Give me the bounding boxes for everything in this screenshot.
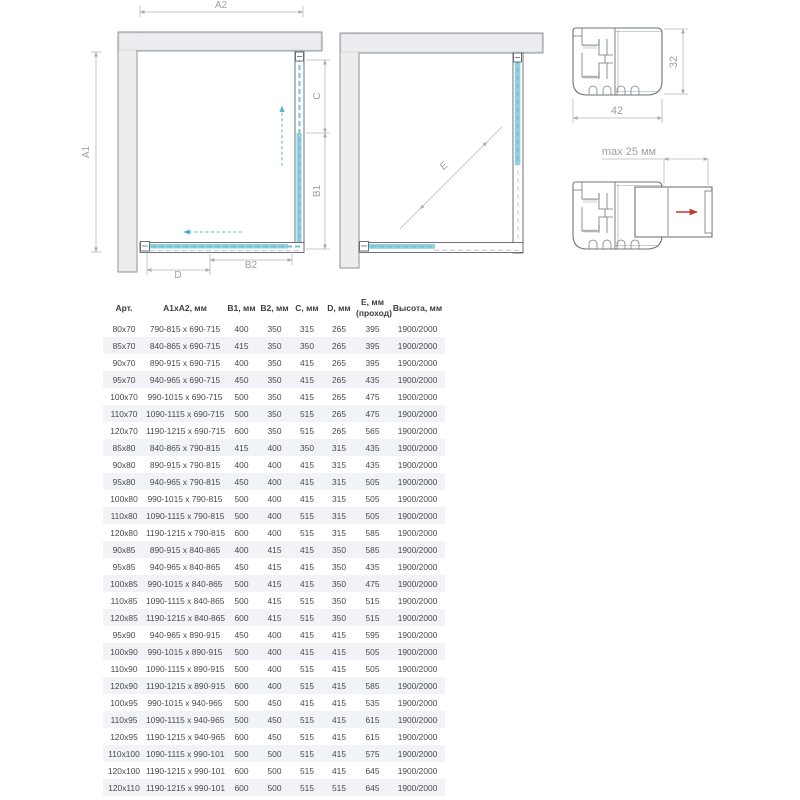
table-cell: 120x80 <box>103 524 145 541</box>
table-row: 95x90940-965 x 890-915450400415415595190… <box>103 626 445 643</box>
table-row: 95x80940-965 x 790-815450400415315505190… <box>103 473 445 490</box>
table-header-row: Арт.A1xA2, ммB1, ммB2, ммC, ммD, ммE, мм… <box>103 296 445 320</box>
dim-label-max-extension: max 25 мм <box>602 146 656 158</box>
table-cell: 515 <box>291 422 323 439</box>
table-cell: 1190-1215 x 840-865 <box>145 609 225 626</box>
table-cell: 475 <box>355 575 390 592</box>
table-cell: 395 <box>355 320 390 337</box>
table-cell: 435 <box>355 558 390 575</box>
table-cell: 400 <box>225 541 258 558</box>
table-cell: 1900/2000 <box>390 320 445 337</box>
table-cell: 1900/2000 <box>390 558 445 575</box>
table-cell: 500 <box>258 745 291 762</box>
column-header: Высота, мм <box>390 296 445 320</box>
table-cell: 1190-1215 x 890-915 <box>145 677 225 694</box>
table-body: 80x70790-815 x 690-715400350315265395190… <box>103 320 445 796</box>
table-cell: 415 <box>291 473 323 490</box>
table-cell: 1090-1115 x 990-1015 <box>145 745 225 762</box>
table-cell: 645 <box>355 762 390 779</box>
table-cell: 1900/2000 <box>390 592 445 609</box>
table-cell: 110x95 <box>103 711 145 728</box>
table-cell: 400 <box>258 456 291 473</box>
table-cell: 400 <box>258 473 291 490</box>
table-row: 110x851090-1115 x 840-865500415515350515… <box>103 592 445 609</box>
table-cell: 415 <box>291 558 323 575</box>
table-cell: 500 <box>225 592 258 609</box>
table-cell: 100x85 <box>103 575 145 592</box>
table-cell: 415 <box>258 609 291 626</box>
table-cell: 615 <box>355 711 390 728</box>
table-cell: 500 <box>225 405 258 422</box>
table-row: 95x70940-965 x 690-715450350415265435190… <box>103 371 445 388</box>
table-cell: 990-1015 x 890-915 <box>145 643 225 660</box>
table-cell: 450 <box>258 694 291 711</box>
table-cell: 500 <box>225 643 258 660</box>
table-cell: 1900/2000 <box>390 779 445 796</box>
table-cell: 500 <box>225 745 258 762</box>
table-cell: 940-965 x 840-865 <box>145 558 225 575</box>
table-cell: 350 <box>291 337 323 354</box>
table-cell: 265 <box>323 337 355 354</box>
table-cell: 1190-1215 x 990-1015 <box>145 762 225 779</box>
dim-label-b1: B1 <box>312 184 323 197</box>
table-cell: 350 <box>323 592 355 609</box>
dim-label-profile-height: 32 <box>668 56 680 68</box>
table-cell: 645 <box>355 779 390 796</box>
table-cell: 1900/2000 <box>390 456 445 473</box>
table-cell: 1900/2000 <box>390 575 445 592</box>
table-cell: 120x85 <box>103 609 145 626</box>
table-row: 120x1101190-1215 x 990-10156005005155156… <box>103 779 445 796</box>
table-cell: 415 <box>323 643 355 660</box>
table-cell: 400 <box>225 320 258 337</box>
dimension-e <box>400 127 502 229</box>
table-row: 90x85890-915 x 840-865400415415350585190… <box>103 541 445 558</box>
table-cell: 600 <box>225 762 258 779</box>
table-cell: 600 <box>225 677 258 694</box>
column-header: B2, мм <box>258 296 291 320</box>
table-cell: 940-965 x 690-715 <box>145 371 225 388</box>
table-cell: 475 <box>355 388 390 405</box>
table-cell: 515 <box>291 405 323 422</box>
table-cell: 415 <box>291 643 323 660</box>
shower-enclosure-spec-sheet: { "plan_left": { "dim_a1": "A1", "dim_a2… <box>0 0 800 800</box>
table-cell: 415 <box>291 626 323 643</box>
table-cell: 535 <box>355 694 390 711</box>
table-cell: 515 <box>291 711 323 728</box>
table-cell: 80x70 <box>103 320 145 337</box>
table-cell: 415 <box>323 694 355 711</box>
table-cell: 415 <box>323 660 355 677</box>
table-cell: 1900/2000 <box>390 541 445 558</box>
table-cell: 265 <box>323 371 355 388</box>
table-cell: 1190-1215 x 690-715 <box>145 422 225 439</box>
sliding-extension <box>635 187 712 237</box>
table-cell: 90x70 <box>103 354 145 371</box>
table-row: 110x701090-1115 x 690-715500350515265475… <box>103 405 445 422</box>
table-row: 90x70890-915 x 690-715400350415265395190… <box>103 354 445 371</box>
table-cell: 515 <box>291 677 323 694</box>
table-cell: 1900/2000 <box>390 728 445 745</box>
table-cell: 110x80 <box>103 507 145 524</box>
table-cell: 315 <box>323 439 355 456</box>
table-cell: 1900/2000 <box>390 371 445 388</box>
table-cell: 500 <box>225 694 258 711</box>
table-cell: 400 <box>258 524 291 541</box>
table-cell: 600 <box>225 609 258 626</box>
table-cell: 315 <box>323 507 355 524</box>
table-cell: 415 <box>258 541 291 558</box>
table-row: 110x801090-1115 x 790-815500400515315505… <box>103 507 445 524</box>
table-cell: 1900/2000 <box>390 422 445 439</box>
table-cell: 890-915 x 790-815 <box>145 456 225 473</box>
table-cell: 1900/2000 <box>390 507 445 524</box>
table-row: 120x701190-1215 x 690-715600350515265565… <box>103 422 445 439</box>
table-cell: 415 <box>291 575 323 592</box>
table-cell: 435 <box>355 439 390 456</box>
table-cell: 1900/2000 <box>390 745 445 762</box>
table-cell: 515 <box>291 524 323 541</box>
table-cell: 840-865 x 790-815 <box>145 439 225 456</box>
table-cell: 315 <box>291 320 323 337</box>
table-cell: 315 <box>323 524 355 541</box>
table-cell: 990-1015 x 690-715 <box>145 388 225 405</box>
bottom-glass-assembly <box>140 242 304 253</box>
right-glass-assembly <box>513 53 523 253</box>
table-cell: 1900/2000 <box>390 643 445 660</box>
table-row: 120x901190-1215 x 890-915600400515415585… <box>103 677 445 694</box>
table-cell: 990-1015 x 840-865 <box>145 575 225 592</box>
table-cell: 350 <box>258 320 291 337</box>
table-cell: 515 <box>291 592 323 609</box>
table-row: 120x951190-1215 x 940-965600450515415615… <box>103 728 445 745</box>
table-cell: 415 <box>291 354 323 371</box>
dim-label-b2: B2 <box>245 260 258 271</box>
table-cell: 595 <box>355 626 390 643</box>
table-cell: 100x80 <box>103 490 145 507</box>
table-cell: 500 <box>225 388 258 405</box>
table-cell: 350 <box>258 337 291 354</box>
table-cell: 500 <box>225 490 258 507</box>
dim-label-e: E <box>438 160 451 173</box>
table-row: 100x80990-1015 x 790-8155004004153155051… <box>103 490 445 507</box>
table-cell: 450 <box>225 473 258 490</box>
table-cell: 120x110 <box>103 779 145 796</box>
table-cell: 1900/2000 <box>390 626 445 643</box>
table-row: 120x851190-1215 x 840-865600415515350515… <box>103 609 445 626</box>
table-cell: 505 <box>355 660 390 677</box>
column-header: C, мм <box>291 296 323 320</box>
table-cell: 1900/2000 <box>390 405 445 422</box>
table-cell: 400 <box>225 456 258 473</box>
table-cell: 265 <box>323 405 355 422</box>
table-cell: 450 <box>225 371 258 388</box>
table-cell: 415 <box>258 592 291 609</box>
table-row: 85x70840-865 x 690-715415350350265395190… <box>103 337 445 354</box>
plan-view-open-drawing: E <box>330 10 560 292</box>
table-cell: 110x85 <box>103 592 145 609</box>
table-cell: 1090-1115 x 840-865 <box>145 592 225 609</box>
table-cell: 1900/2000 <box>390 660 445 677</box>
table-cell: 1090-1115 x 940-965 <box>145 711 225 728</box>
table-cell: 350 <box>258 354 291 371</box>
plan-view-closed-drawing: A2 A1 C B1 B2 D <box>80 0 330 292</box>
table-cell: 1900/2000 <box>390 524 445 541</box>
table-row: 100x70990-1015 x 690-7155003504152654751… <box>103 388 445 405</box>
table-cell: 415 <box>323 626 355 643</box>
table-cell: 415 <box>323 745 355 762</box>
table-cell: 1900/2000 <box>390 439 445 456</box>
right-glass-assembly <box>295 52 304 252</box>
column-header: Арт. <box>103 296 145 320</box>
table-cell: 395 <box>355 354 390 371</box>
table-row: 100x85990-1015 x 840-8655004154153504751… <box>103 575 445 592</box>
table-cell: 515 <box>291 507 323 524</box>
table-cell: 95x70 <box>103 371 145 388</box>
table-cell: 85x70 <box>103 337 145 354</box>
column-header: E, мм (проход) <box>355 296 390 320</box>
table-cell: 890-915 x 690-715 <box>145 354 225 371</box>
table-cell: 95x85 <box>103 558 145 575</box>
table-row: 90x80890-915 x 790-815400400415315435190… <box>103 456 445 473</box>
table-cell: 120x70 <box>103 422 145 439</box>
dim-label-d: D <box>174 270 181 281</box>
table-row: 85x80840-865 x 790-815415400350315435190… <box>103 439 445 456</box>
table-cell: 575 <box>355 745 390 762</box>
slide-direction-arrows <box>184 106 282 232</box>
table-cell: 1900/2000 <box>390 490 445 507</box>
table-cell: 500 <box>258 762 291 779</box>
table-cell: 600 <box>225 728 258 745</box>
table-cell: 435 <box>355 456 390 473</box>
table-cell: 315 <box>323 490 355 507</box>
table-cell: 475 <box>355 405 390 422</box>
table-cell: 415 <box>323 728 355 745</box>
table-cell: 600 <box>225 422 258 439</box>
table-cell: 505 <box>355 473 390 490</box>
table-cell: 515 <box>355 592 390 609</box>
table-cell: 1190-1215 x 790-815 <box>145 524 225 541</box>
table-cell: 120x100 <box>103 762 145 779</box>
table-cell: 400 <box>258 677 291 694</box>
table-row: 100x95990-1015 x 940-9655004504154155351… <box>103 694 445 711</box>
table-row: 110x901090-1115 x 890-915500400515415505… <box>103 660 445 677</box>
table-cell: 350 <box>323 609 355 626</box>
table-cell: 400 <box>225 354 258 371</box>
table-cell: 515 <box>291 745 323 762</box>
table-cell: 100x90 <box>103 643 145 660</box>
table-cell: 790-815 x 690-715 <box>145 320 225 337</box>
table-cell: 1090-1115 x 790-815 <box>145 507 225 524</box>
table-row: 80x70790-815 x 690-715400350315265395190… <box>103 320 445 337</box>
table-cell: 615 <box>355 728 390 745</box>
table-cell: 1900/2000 <box>390 677 445 694</box>
column-header: D, мм <box>323 296 355 320</box>
table-cell: 415 <box>225 439 258 456</box>
table-cell: 1900/2000 <box>390 388 445 405</box>
table-row: 110x951090-1115 x 940-965500450515415615… <box>103 711 445 728</box>
table-cell: 585 <box>355 677 390 694</box>
table-cell: 400 <box>258 507 291 524</box>
table-cell: 350 <box>323 541 355 558</box>
table-cell: 95x80 <box>103 473 145 490</box>
dim-label-a2: A2 <box>215 0 228 11</box>
table-cell: 415 <box>291 490 323 507</box>
table-cell: 400 <box>258 643 291 660</box>
table-cell: 940-965 x 790-815 <box>145 473 225 490</box>
walls <box>340 33 543 268</box>
spec-table-section: Арт.A1xA2, ммB1, ммB2, ммC, ммD, ммE, мм… <box>103 296 445 796</box>
column-header: B1, мм <box>225 296 258 320</box>
table-cell: 435 <box>355 371 390 388</box>
table-cell: 265 <box>323 388 355 405</box>
table-cell: 515 <box>323 779 355 796</box>
table-cell: 505 <box>355 643 390 660</box>
dim-label-a1: A1 <box>81 145 92 158</box>
table-cell: 585 <box>355 541 390 558</box>
table-cell: 600 <box>225 524 258 541</box>
table-cell: 110x90 <box>103 660 145 677</box>
table-cell: 515 <box>291 660 323 677</box>
table-cell: 90x85 <box>103 541 145 558</box>
table-cell: 600 <box>225 779 258 796</box>
table-cell: 415 <box>291 541 323 558</box>
table-cell: 400 <box>258 626 291 643</box>
table-header-row: Арт.A1xA2, ммB1, ммB2, ммC, ммD, ммE, мм… <box>103 296 445 320</box>
table-cell: 350 <box>323 558 355 575</box>
table-cell: 565 <box>355 422 390 439</box>
table-cell: 415 <box>291 456 323 473</box>
table-cell: 500 <box>258 779 291 796</box>
table-cell: 315 <box>323 456 355 473</box>
table-cell: 890-915 x 840-865 <box>145 541 225 558</box>
table-cell: 100x95 <box>103 694 145 711</box>
table-cell: 415 <box>323 677 355 694</box>
table-cell: 415 <box>323 762 355 779</box>
table-cell: 500 <box>225 575 258 592</box>
table-cell: 350 <box>291 439 323 456</box>
table-cell: 350 <box>323 575 355 592</box>
table-cell: 85x80 <box>103 439 145 456</box>
table-row: 110x1001090-1115 x 990-10155005005154155… <box>103 745 445 762</box>
table-cell: 500 <box>225 660 258 677</box>
table-cell: 395 <box>355 337 390 354</box>
table-cell: 450 <box>225 626 258 643</box>
table-cell: 990-1015 x 940-965 <box>145 694 225 711</box>
table-cell: 515 <box>291 728 323 745</box>
dim-label-c: C <box>312 92 323 99</box>
column-header: A1xA2, мм <box>145 296 225 320</box>
table-cell: 415 <box>258 558 291 575</box>
table-cell: 415 <box>291 694 323 711</box>
table-cell: 840-865 x 690-715 <box>145 337 225 354</box>
table-cell: 515 <box>291 609 323 626</box>
table-row: 120x1001190-1215 x 990-10156005005154156… <box>103 762 445 779</box>
table-cell: 110x70 <box>103 405 145 422</box>
walls <box>118 32 322 272</box>
table-cell: 350 <box>258 371 291 388</box>
table-cell: 350 <box>258 388 291 405</box>
table-cell: 265 <box>323 354 355 371</box>
table-cell: 120x95 <box>103 728 145 745</box>
table-cell: 1190-1215 x 990-1015 <box>145 779 225 796</box>
table-cell: 1900/2000 <box>390 609 445 626</box>
table-cell: 415 <box>291 388 323 405</box>
fixed-glass-panel <box>297 133 302 249</box>
table-cell: 1090-1115 x 890-915 <box>145 660 225 677</box>
table-cell: 940-965 x 890-915 <box>145 626 225 643</box>
table-cell: 450 <box>258 728 291 745</box>
table-cell: 1190-1215 x 940-965 <box>145 728 225 745</box>
max-extension-dimension <box>602 159 708 185</box>
table-cell: 505 <box>355 490 390 507</box>
table-cell: 1900/2000 <box>390 762 445 779</box>
table-cell: 500 <box>225 711 258 728</box>
table-cell: 585 <box>355 524 390 541</box>
table-cell: 415 <box>225 337 258 354</box>
table-cell: 450 <box>258 711 291 728</box>
spec-table: Арт.A1xA2, ммB1, ммB2, ммC, ммD, ммE, мм… <box>103 296 445 796</box>
table-cell: 1900/2000 <box>390 694 445 711</box>
table-cell: 315 <box>323 473 355 490</box>
table-cell: 450 <box>225 558 258 575</box>
table-cell: 505 <box>355 507 390 524</box>
table-cell: 1900/2000 <box>390 337 445 354</box>
bottom-glass-assembly <box>359 242 523 253</box>
table-cell: 110x100 <box>103 745 145 762</box>
table-cell: 515 <box>355 609 390 626</box>
table-cell: 350 <box>258 405 291 422</box>
table-cell: 415 <box>258 575 291 592</box>
profile-sections-drawing: 32 42 max 25 мм <box>555 15 800 250</box>
table-cell: 1090-1115 x 690-715 <box>145 405 225 422</box>
table-cell: 265 <box>323 422 355 439</box>
table-cell: 500 <box>225 507 258 524</box>
table-cell: 1900/2000 <box>390 473 445 490</box>
wall-profile-section <box>573 28 662 95</box>
table-cell: 990-1015 x 790-815 <box>145 490 225 507</box>
table-cell: 415 <box>291 371 323 388</box>
table-cell: 120x90 <box>103 677 145 694</box>
table-row: 120x801190-1215 x 790-815600400515315585… <box>103 524 445 541</box>
table-cell: 100x70 <box>103 388 145 405</box>
extendable-profile-section <box>573 182 712 249</box>
table-row: 95x85940-965 x 840-865450415415350435190… <box>103 558 445 575</box>
table-cell: 400 <box>258 660 291 677</box>
table-cell: 1900/2000 <box>390 354 445 371</box>
table-cell: 400 <box>258 439 291 456</box>
table-cell: 415 <box>323 711 355 728</box>
table-cell: 1900/2000 <box>390 711 445 728</box>
table-cell: 515 <box>291 779 323 796</box>
table-row: 100x90990-1015 x 890-9155004004154155051… <box>103 643 445 660</box>
table-cell: 350 <box>258 422 291 439</box>
table-cell: 265 <box>323 320 355 337</box>
table-cell: 515 <box>291 762 323 779</box>
table-cell: 400 <box>258 490 291 507</box>
dim-label-profile-width: 42 <box>611 105 623 117</box>
table-cell: 90x80 <box>103 456 145 473</box>
table-cell: 95x90 <box>103 626 145 643</box>
